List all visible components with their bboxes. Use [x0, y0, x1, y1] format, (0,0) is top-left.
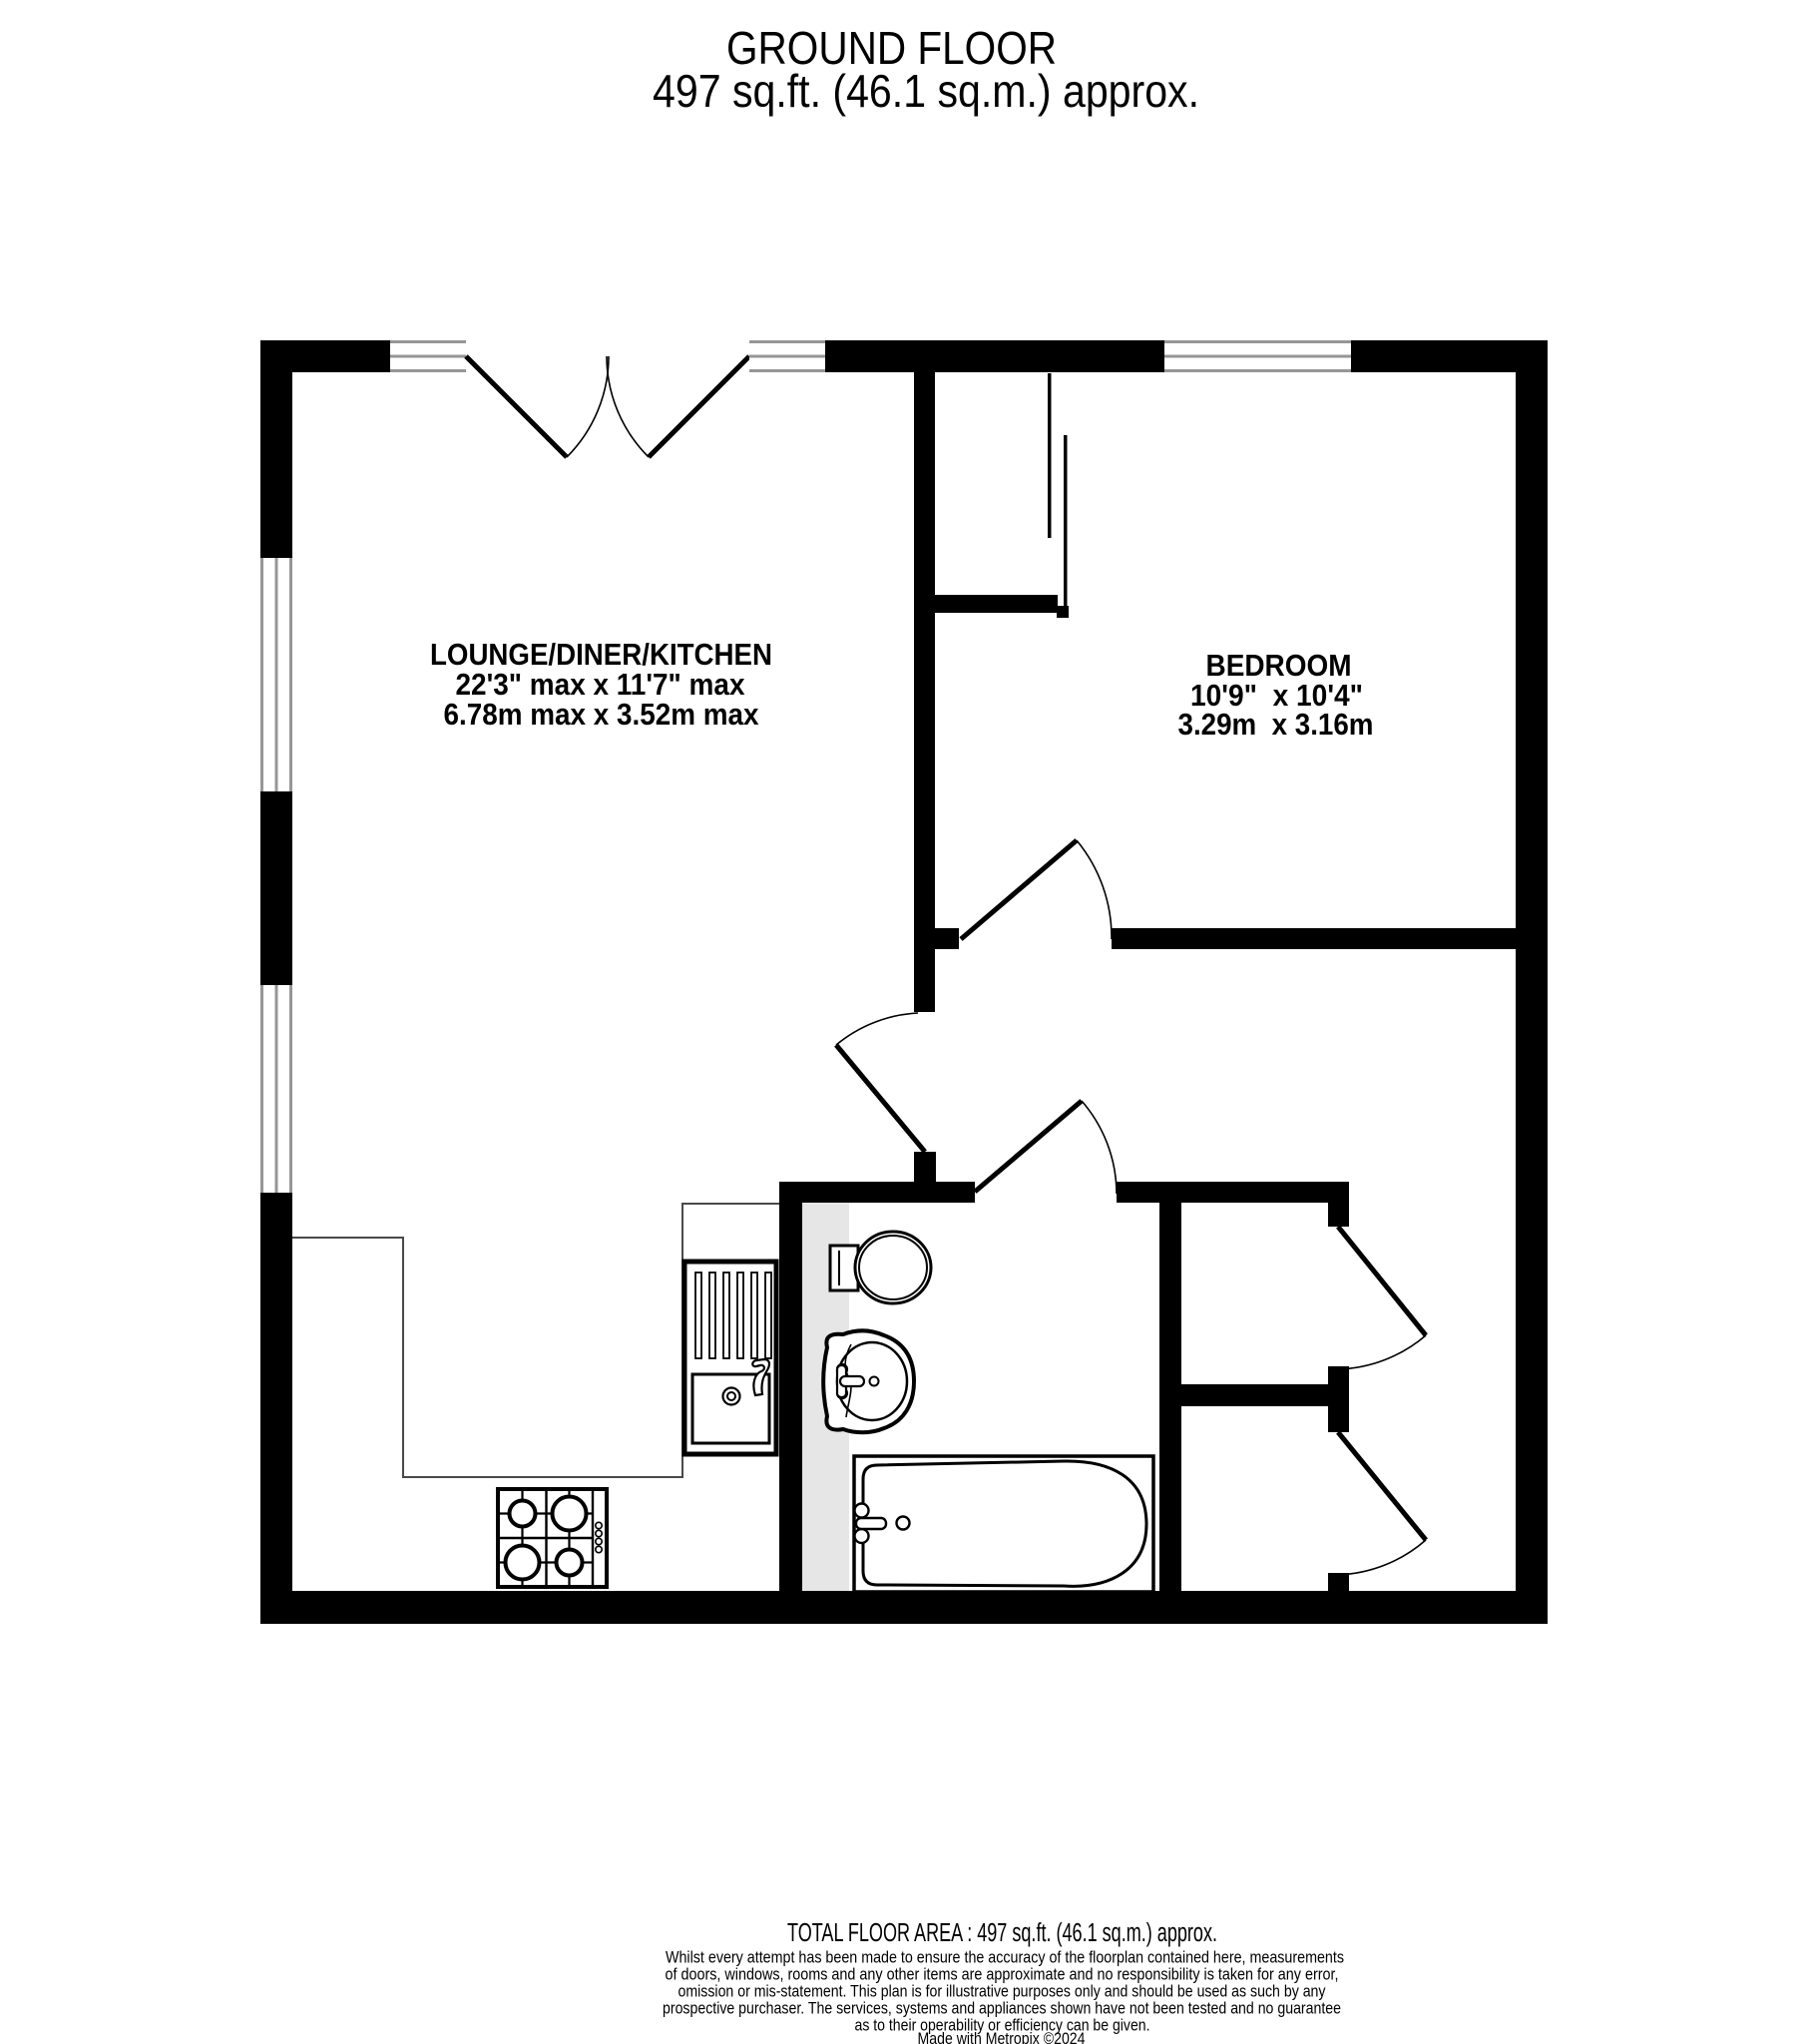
- svg-text:TOTAL FLOOR AREA : 497 sq.ft.: TOTAL FLOOR AREA : 497 sq.ft. (46.1 sq.m…: [787, 1919, 1217, 1947]
- svg-text:497 sq.ft. (46.1 sq.m.) approx: 497 sq.ft. (46.1 sq.m.) approx.: [653, 65, 1199, 117]
- svg-text:Made with Metropix ©2024: Made with Metropix ©2024: [918, 2029, 1086, 2044]
- svg-text:6.78m max x 3.52m max: 6.78m max x 3.52m max: [444, 697, 760, 732]
- svg-text:3.29m x 3.16m: 3.29m x 3.16m: [1178, 707, 1374, 742]
